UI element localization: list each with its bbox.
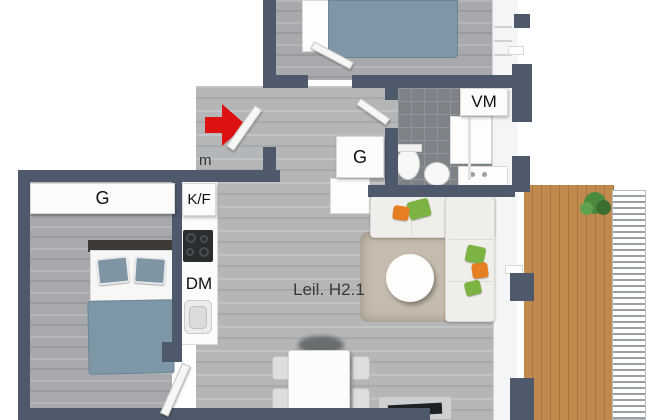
wall bbox=[510, 378, 534, 420]
burner-icon bbox=[200, 235, 208, 243]
wall bbox=[385, 88, 398, 100]
dining-chair bbox=[352, 356, 370, 380]
wardrobe-bedroom-label-box: G bbox=[30, 183, 175, 214]
wall bbox=[162, 342, 182, 362]
wall bbox=[385, 128, 398, 188]
closet-shelf-line bbox=[494, 26, 512, 28]
sofa-cushion-line bbox=[449, 239, 493, 240]
wall bbox=[512, 64, 532, 122]
unit-label: Leil. H2.1 bbox=[293, 280, 365, 300]
bed-duvet bbox=[87, 299, 174, 374]
sideboard bbox=[330, 178, 370, 214]
balcony-railing bbox=[612, 190, 646, 420]
sofa-pillow-orange bbox=[471, 262, 489, 279]
wall bbox=[263, 75, 308, 88]
plant-icon bbox=[596, 200, 611, 215]
wall bbox=[18, 170, 280, 182]
wardrobe-bedroom-label: G bbox=[95, 188, 109, 209]
coffee-table bbox=[386, 254, 434, 302]
closet-shelf-line bbox=[494, 40, 512, 42]
wall bbox=[514, 14, 530, 28]
wall bbox=[18, 408, 430, 420]
floor-plan: VM G m K/F DM G bbox=[0, 0, 650, 420]
bathroom-sink-round bbox=[424, 162, 450, 186]
fridge-freezer-label: K/F bbox=[187, 191, 210, 208]
wardrobe-hall-label: G bbox=[353, 147, 367, 168]
wall bbox=[18, 170, 30, 420]
bed-pillow bbox=[96, 255, 131, 285]
bed-top bbox=[328, 0, 458, 58]
burner-icon bbox=[186, 248, 194, 256]
partial-text: m bbox=[199, 152, 212, 169]
wardrobe-hall-label-box: G bbox=[336, 136, 384, 178]
faucet-icon bbox=[482, 172, 487, 177]
toilet-tank bbox=[394, 144, 422, 152]
sofa-pillow-orange bbox=[392, 205, 410, 221]
cooktop-icon bbox=[183, 230, 213, 262]
washing-machine bbox=[450, 116, 492, 164]
balcony-deck bbox=[524, 185, 614, 420]
fridge-freezer-label-box: K/F bbox=[182, 183, 216, 216]
washing-machine-label-box: VM bbox=[460, 88, 508, 116]
bed-pillow bbox=[133, 256, 167, 285]
burner-icon bbox=[186, 233, 196, 243]
wall bbox=[352, 75, 515, 88]
washing-machine-label: VM bbox=[471, 92, 497, 112]
window-sill bbox=[508, 46, 524, 55]
kitchen-sink-icon bbox=[184, 300, 212, 334]
wall bbox=[368, 185, 515, 197]
wall bbox=[510, 273, 534, 301]
sink-basin bbox=[189, 306, 207, 329]
toilet-icon bbox=[396, 148, 420, 180]
dishwasher-label-box: DM bbox=[182, 272, 216, 296]
entrance-arrow-icon bbox=[205, 117, 222, 133]
dishwasher-label: DM bbox=[186, 274, 212, 294]
plant-icon bbox=[580, 202, 593, 215]
burner-icon bbox=[199, 247, 209, 257]
shower-glass bbox=[468, 118, 471, 180]
